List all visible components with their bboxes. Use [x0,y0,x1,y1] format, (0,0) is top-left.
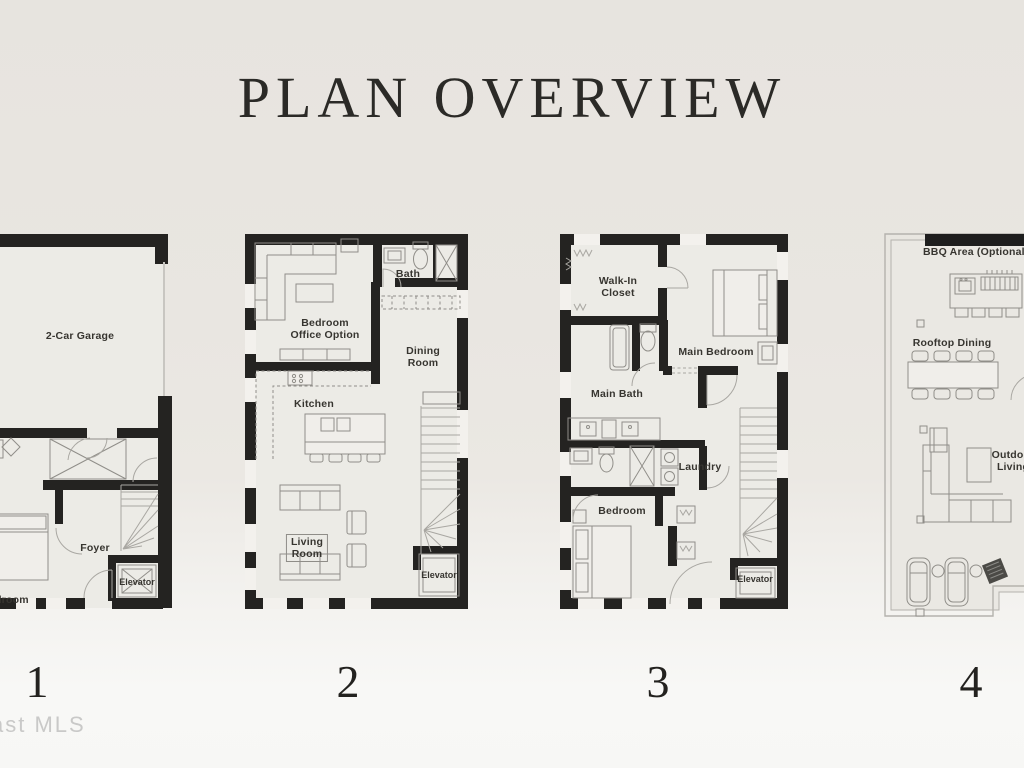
room-label-bedroom: Bedroom [0,594,29,606]
room-label-main-bath: Main Bath [591,388,643,400]
room-label-elevator: Elevator [421,569,457,581]
room-label-living: Living Room [286,534,328,562]
room-label-elevator: Elevator [119,576,155,588]
room-label-elevator: Elevator [737,573,773,585]
floor-plan-3-drawing [558,228,790,618]
room-label-dining: Dining Room [406,345,440,369]
room-label-outdoor-living: Outdoor Living [992,449,1024,473]
floor-plan-1-drawing [0,226,172,618]
page-title: PLAN OVERVIEW [0,64,1024,131]
floor-plan-3: Walk-In Closet Main Bedroom Main Bath La… [558,228,790,618]
room-label-bath: Bath [396,268,420,280]
room-label-bedroom-office: Bedroom Office Option [290,317,359,341]
room-label-foyer: Foyer [80,542,110,554]
room-label-laundry: Laundry [679,461,722,473]
room-label-bedroom: Bedroom [598,505,646,517]
plan-number-3: 3 [647,655,670,708]
room-label-bbq-area: BBQ Area (Optional P [923,246,1024,258]
plan-number-2: 2 [337,655,360,708]
page-background: PLAN OVERVIEW [0,0,1024,768]
floor-plan-1: 2-Car Garage Foyer Bedroom Elevator [0,226,172,618]
floor-plan-2: Bedroom Office Option Bath Dining Room K… [243,228,470,618]
room-label-garage: 2-Car Garage [46,330,114,342]
room-label-walk-in-closet: Walk-In Closet [599,275,637,299]
plan-number-4: 4 [960,655,983,708]
room-label-rooftop-dining: Rooftop Dining [913,337,992,349]
floor-plan-2-drawing [243,228,470,618]
room-label-kitchen: Kitchen [294,398,334,410]
room-label-main-bedroom: Main Bedroom [678,346,753,358]
floor-plan-4-drawing [875,230,1024,630]
plan-number-1: 1 [26,655,49,708]
mls-watermark: ast MLS [0,712,86,738]
plan1-bed [0,514,48,580]
floor-plan-4: BBQ Area (Optional P Rooftop Dining Outd… [875,230,1024,630]
